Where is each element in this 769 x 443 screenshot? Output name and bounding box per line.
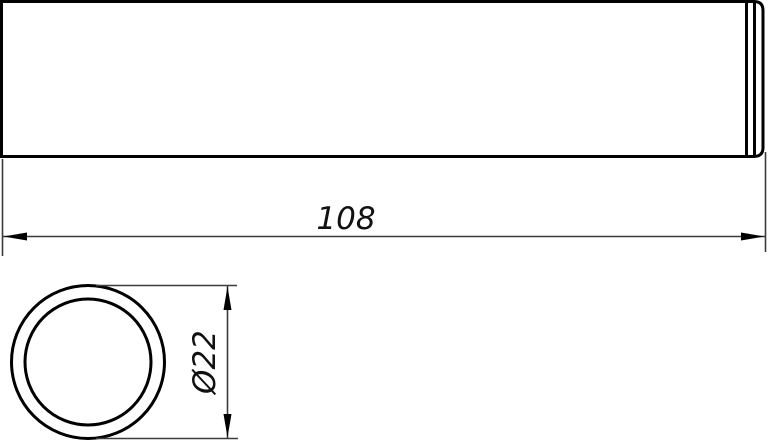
length-dimension-text: 108 (316, 201, 375, 237)
length-arrow-left (4, 233, 28, 241)
diameter-arrow-top (224, 287, 232, 311)
length-dimension: 108 (3, 152, 766, 256)
tube-outer-circle (12, 286, 165, 439)
technical-drawing-svg: 108 Ø22 (0, 0, 769, 443)
diameter-dimension: Ø22 (96, 286, 238, 439)
tube-body-outline (2, 2, 764, 157)
drawing-sheet: 108 Ø22 (0, 0, 769, 443)
front-view (12, 286, 165, 439)
tube-inner-circle (25, 299, 151, 425)
diameter-arrow-bottom (224, 414, 232, 438)
diameter-dimension-text: Ø22 (187, 330, 223, 396)
length-arrow-right (741, 233, 765, 241)
side-view (2, 2, 764, 157)
